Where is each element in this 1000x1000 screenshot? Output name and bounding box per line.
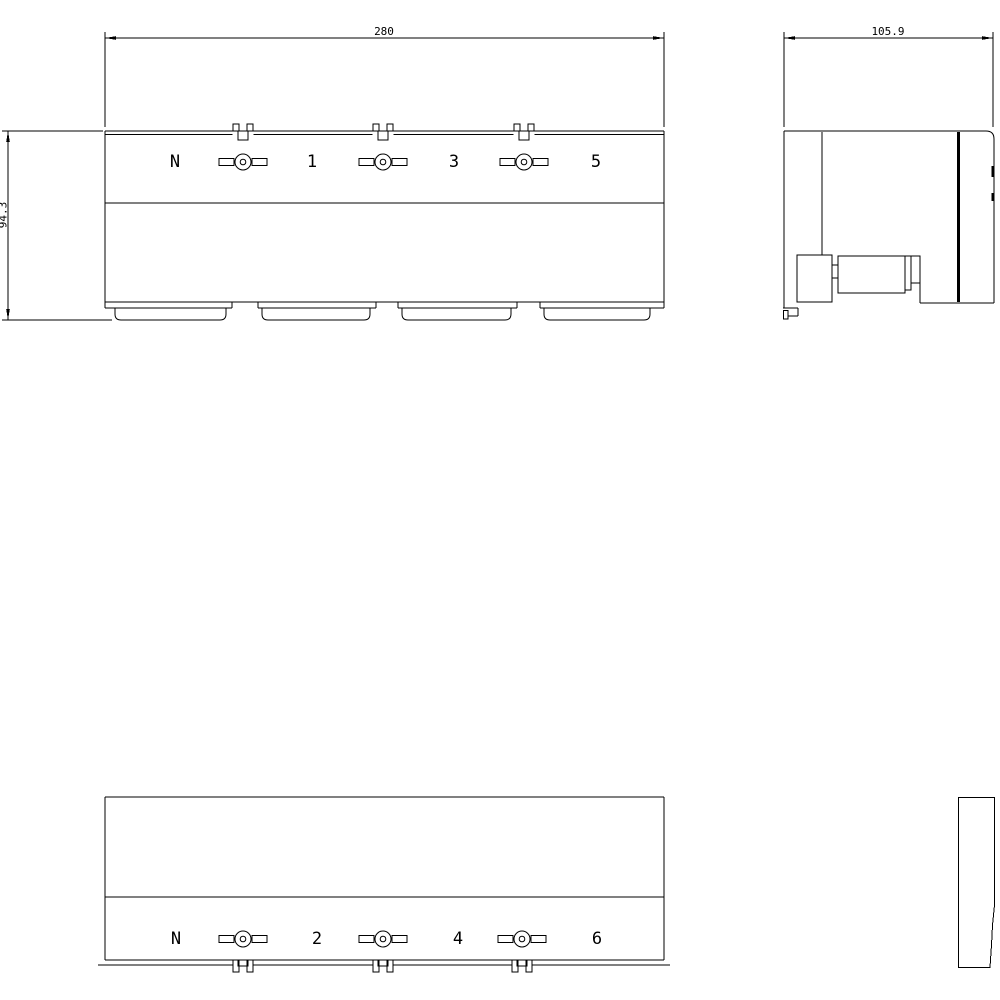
arrowhead-icon bbox=[105, 36, 116, 40]
arrowhead-icon bbox=[653, 36, 664, 40]
rear-side-strip bbox=[959, 798, 995, 968]
mounting-foot-icon bbox=[258, 302, 376, 320]
din-rail-clip-icon bbox=[797, 255, 920, 303]
rail-recess bbox=[838, 256, 905, 293]
screw-terminal-icon bbox=[359, 154, 407, 170]
side-body-outline bbox=[783, 131, 995, 319]
screw-terminal-icon bbox=[219, 154, 267, 170]
mounting-foot-icon bbox=[398, 302, 517, 320]
screw-terminal-icon bbox=[219, 931, 267, 947]
terminal-label: 3 bbox=[449, 152, 459, 172]
rear-body-outline bbox=[98, 797, 670, 965]
top-right-corner bbox=[986, 131, 994, 139]
terminal-label: 6 bbox=[592, 929, 602, 949]
strip-outline bbox=[959, 798, 995, 968]
clip-jaw bbox=[911, 256, 920, 283]
snap-notch-icon bbox=[514, 124, 535, 142]
front-snap-notches bbox=[233, 124, 535, 142]
snap-notch-icon bbox=[512, 959, 533, 972]
edge-tick bbox=[992, 193, 995, 201]
snap-notch-icon bbox=[233, 124, 254, 142]
screw-terminal-icon bbox=[359, 931, 407, 947]
mounting-foot-icon bbox=[540, 302, 664, 320]
dimension-value: 280 bbox=[374, 25, 394, 38]
front-mounting-feet bbox=[105, 302, 664, 320]
side-view: 105.9 bbox=[783, 25, 995, 319]
snap-notch-icon bbox=[373, 124, 394, 142]
arrowhead-icon bbox=[982, 36, 993, 40]
arrowhead-icon bbox=[6, 131, 10, 142]
front-view: 280 94.3 bbox=[0, 25, 664, 320]
side-depth-dimension: 105.9 bbox=[784, 25, 993, 127]
thick-partition-line bbox=[957, 132, 960, 302]
terminal-label: 5 bbox=[591, 152, 601, 172]
mounting-foot-icon bbox=[105, 302, 232, 320]
clip-nib bbox=[784, 311, 789, 320]
dimension-value: 94.3 bbox=[0, 202, 10, 229]
snap-notch-icon bbox=[233, 959, 254, 972]
terminal-label: 4 bbox=[453, 929, 463, 949]
front-body-outline bbox=[105, 131, 664, 302]
snap-notch-icon bbox=[373, 959, 394, 972]
screw-terminal-icon bbox=[500, 154, 548, 170]
front-height-dimension: 94.3 bbox=[0, 131, 112, 320]
rear-view: N 2 4 6 bbox=[98, 797, 670, 972]
rear-screw-terminals bbox=[219, 931, 546, 947]
clip-jaw bbox=[905, 256, 911, 290]
terminal-label: N bbox=[171, 929, 181, 949]
edge-tick bbox=[992, 166, 995, 177]
drawing-canvas: 280 94.3 bbox=[0, 0, 1000, 1000]
dimension-value: 105.9 bbox=[871, 25, 904, 38]
arrowhead-icon bbox=[6, 309, 10, 320]
terminal-label: 1 bbox=[307, 152, 317, 172]
screw-terminal-icon bbox=[498, 931, 546, 947]
arrowhead-icon bbox=[784, 36, 795, 40]
clip-block bbox=[797, 255, 832, 302]
terminal-label: N bbox=[170, 152, 180, 172]
front-screw-terminals bbox=[219, 154, 548, 170]
front-width-dimension: 280 bbox=[105, 25, 664, 127]
dimension-drawing: 280 94.3 bbox=[0, 0, 1000, 1000]
terminal-label: 2 bbox=[312, 929, 322, 949]
